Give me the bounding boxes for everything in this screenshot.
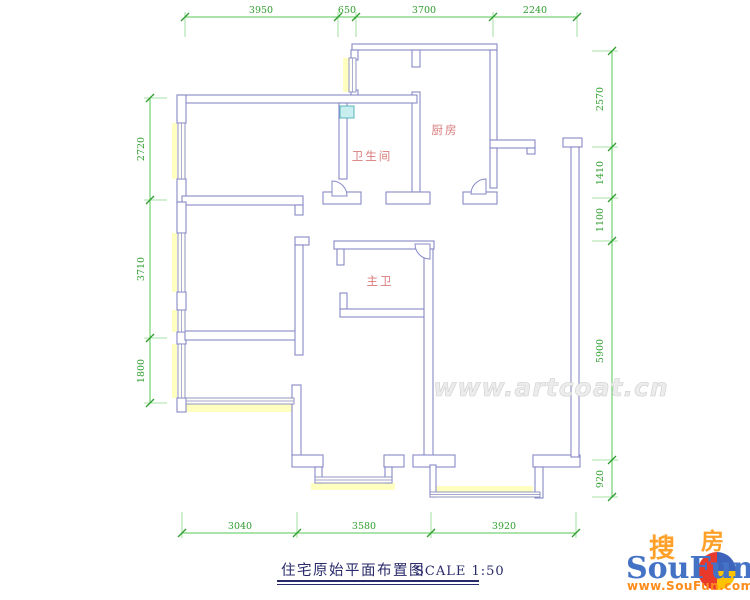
dim-label: 2720	[136, 137, 147, 161]
floor-plan-drawing: 卫生间 厨房 主卫 3950 650 3700 2240 3040 3580 3…	[0, 0, 750, 600]
dimension-right: 2570 1410 1100 5900 920	[592, 47, 618, 501]
dim-label: 1800	[136, 359, 147, 383]
dim-label: 3920	[492, 521, 516, 532]
highlight-fixture	[340, 106, 354, 118]
logo-url: www.SouFun.com	[627, 579, 750, 593]
dim-label: 3950	[249, 5, 273, 16]
title-underline	[277, 580, 479, 582]
dimension-bottom: 3040 3580 3920	[178, 512, 580, 538]
dim-label: 1410	[595, 161, 606, 185]
dim-label: 650	[338, 5, 356, 16]
walls	[177, 44, 582, 498]
room-labels: 卫生间 厨房 主卫	[352, 123, 459, 288]
dim-label: 920	[595, 470, 606, 488]
dim-label: 2570	[595, 87, 606, 111]
title-block: 住宅原始平面布置图 SCALE 1:50	[277, 562, 505, 585]
dim-label: 2240	[523, 5, 547, 16]
door-swing-icon	[415, 244, 430, 259]
dim-label: 1100	[595, 208, 606, 232]
dimension-top: 3950 650 3700 2240	[181, 5, 581, 37]
dim-label: 3700	[412, 5, 436, 16]
dimension-left: 2720 3710 1800	[136, 94, 167, 407]
windows	[178, 58, 540, 497]
dim-label: 5900	[595, 339, 606, 363]
title-underline	[277, 584, 479, 585]
floor-plan-page: 卫生间 厨房 主卫 3950 650 3700 2240 3040 3580 3…	[0, 0, 750, 600]
dim-label: 3580	[352, 521, 376, 532]
room-label-bathroom: 卫生间	[352, 149, 393, 163]
door-swing-icon	[471, 179, 486, 194]
scale-label: SCALE 1:50	[415, 564, 505, 579]
window-bands	[172, 58, 533, 492]
room-label-kitchen: 厨房	[432, 123, 459, 137]
dim-label: 3040	[228, 521, 252, 532]
watermark-text: www.artcoat.cn	[433, 373, 668, 402]
drawing-title: 住宅原始平面布置图	[281, 562, 425, 579]
dim-label: 3710	[136, 257, 147, 281]
soufun-logo: 搜 房 SouFun www.SouFun.com	[626, 528, 750, 593]
room-label-master-bath: 主卫	[367, 274, 394, 288]
door-swing-icon	[332, 181, 347, 196]
